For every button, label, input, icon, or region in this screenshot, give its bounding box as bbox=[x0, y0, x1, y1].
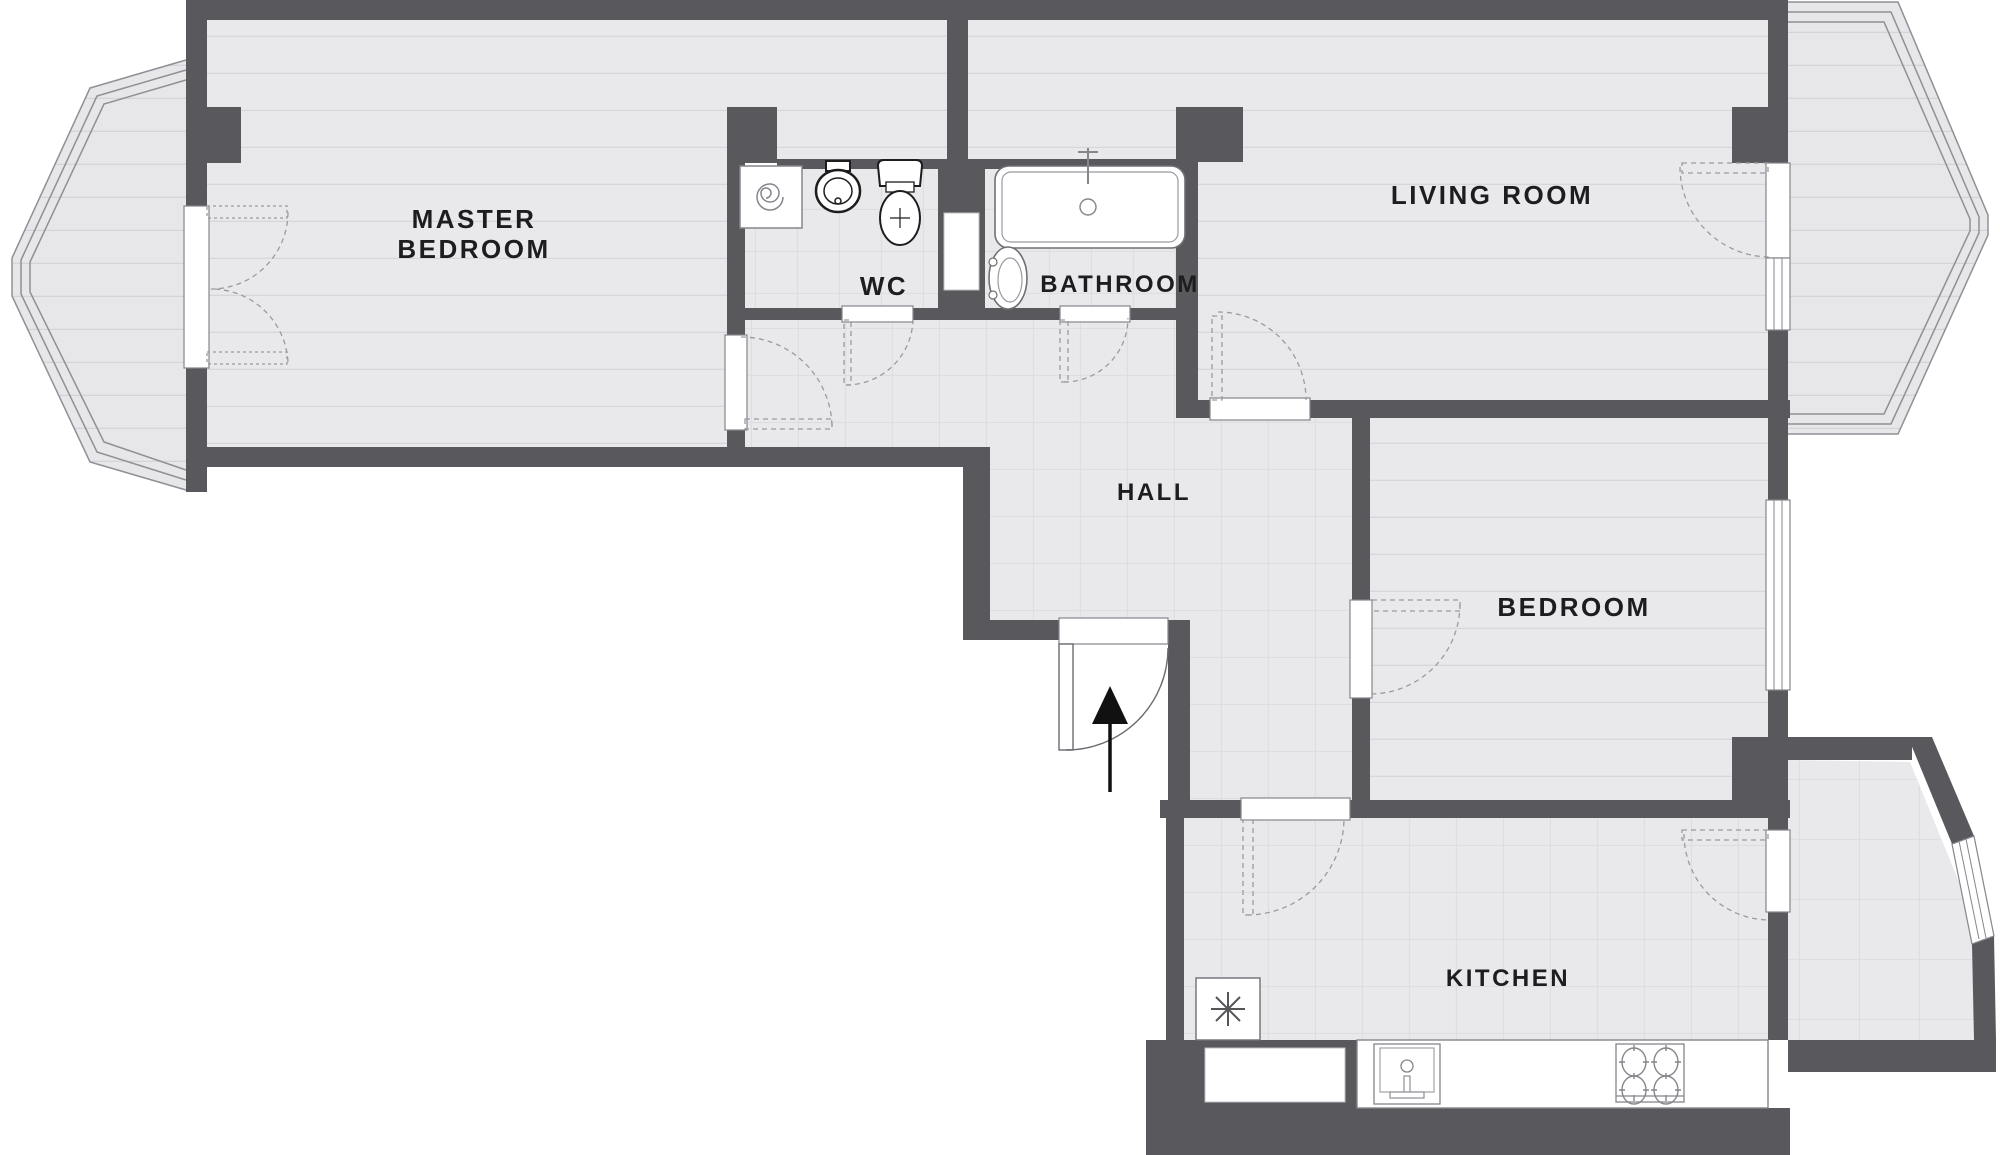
shaft-niche bbox=[944, 213, 979, 290]
wc-label: WC bbox=[860, 271, 908, 301]
bedroom-window bbox=[1766, 500, 1790, 690]
entrance-arrow-icon bbox=[1092, 686, 1128, 792]
bedroom-door-opening bbox=[1350, 600, 1372, 698]
living-room-label: LIVING ROOM bbox=[1391, 180, 1593, 210]
hall-label: HALL bbox=[1117, 479, 1191, 506]
living-room-door-opening bbox=[1210, 398, 1310, 420]
master-bedroom-label-line1: MASTER bbox=[412, 204, 537, 234]
floors bbox=[12, 2, 1988, 1040]
bedroom-label: BEDROOM bbox=[1497, 592, 1650, 622]
kitchen-label: KITCHEN bbox=[1446, 965, 1570, 992]
kitchen-wall-niche bbox=[1205, 1048, 1345, 1102]
floor-plan-page: MASTER BEDROOM WC BATHROOM LIVING ROOM H… bbox=[0, 0, 2000, 1155]
fridge-asterisk-icon bbox=[1211, 992, 1245, 1026]
master-bedroom-door-opening bbox=[725, 335, 747, 430]
floor-plan-drawing: MASTER BEDROOM WC BATHROOM LIVING ROOM H… bbox=[0, 0, 2000, 1155]
bathroom-label: BATHROOM bbox=[1040, 271, 1200, 298]
living-room-window bbox=[1766, 258, 1790, 330]
living-room-strip-floor bbox=[968, 20, 1198, 159]
living-room-balcony-door-opening bbox=[1766, 163, 1790, 258]
wc-door-opening bbox=[842, 306, 913, 322]
fridge bbox=[1196, 978, 1260, 1040]
entrance-door-opening bbox=[1059, 618, 1168, 644]
bathroom-door-opening bbox=[1060, 306, 1130, 322]
master-bedroom-label-line2: BEDROOM bbox=[397, 234, 550, 264]
left-bay-floor bbox=[12, 60, 186, 490]
kitchen-balcony-door-opening bbox=[1766, 830, 1790, 912]
french-door-opening bbox=[184, 206, 209, 368]
bidet bbox=[989, 247, 1027, 309]
living-room-floor bbox=[1198, 20, 1768, 400]
toilet bbox=[878, 160, 922, 245]
kitchen-sink bbox=[1374, 1044, 1440, 1104]
washing-machine bbox=[740, 166, 802, 228]
stove bbox=[1616, 1044, 1684, 1104]
kitchen-door-opening bbox=[1241, 798, 1350, 820]
right-bay-floor bbox=[1788, 2, 1988, 434]
kitchen-floor bbox=[1184, 818, 1768, 1040]
